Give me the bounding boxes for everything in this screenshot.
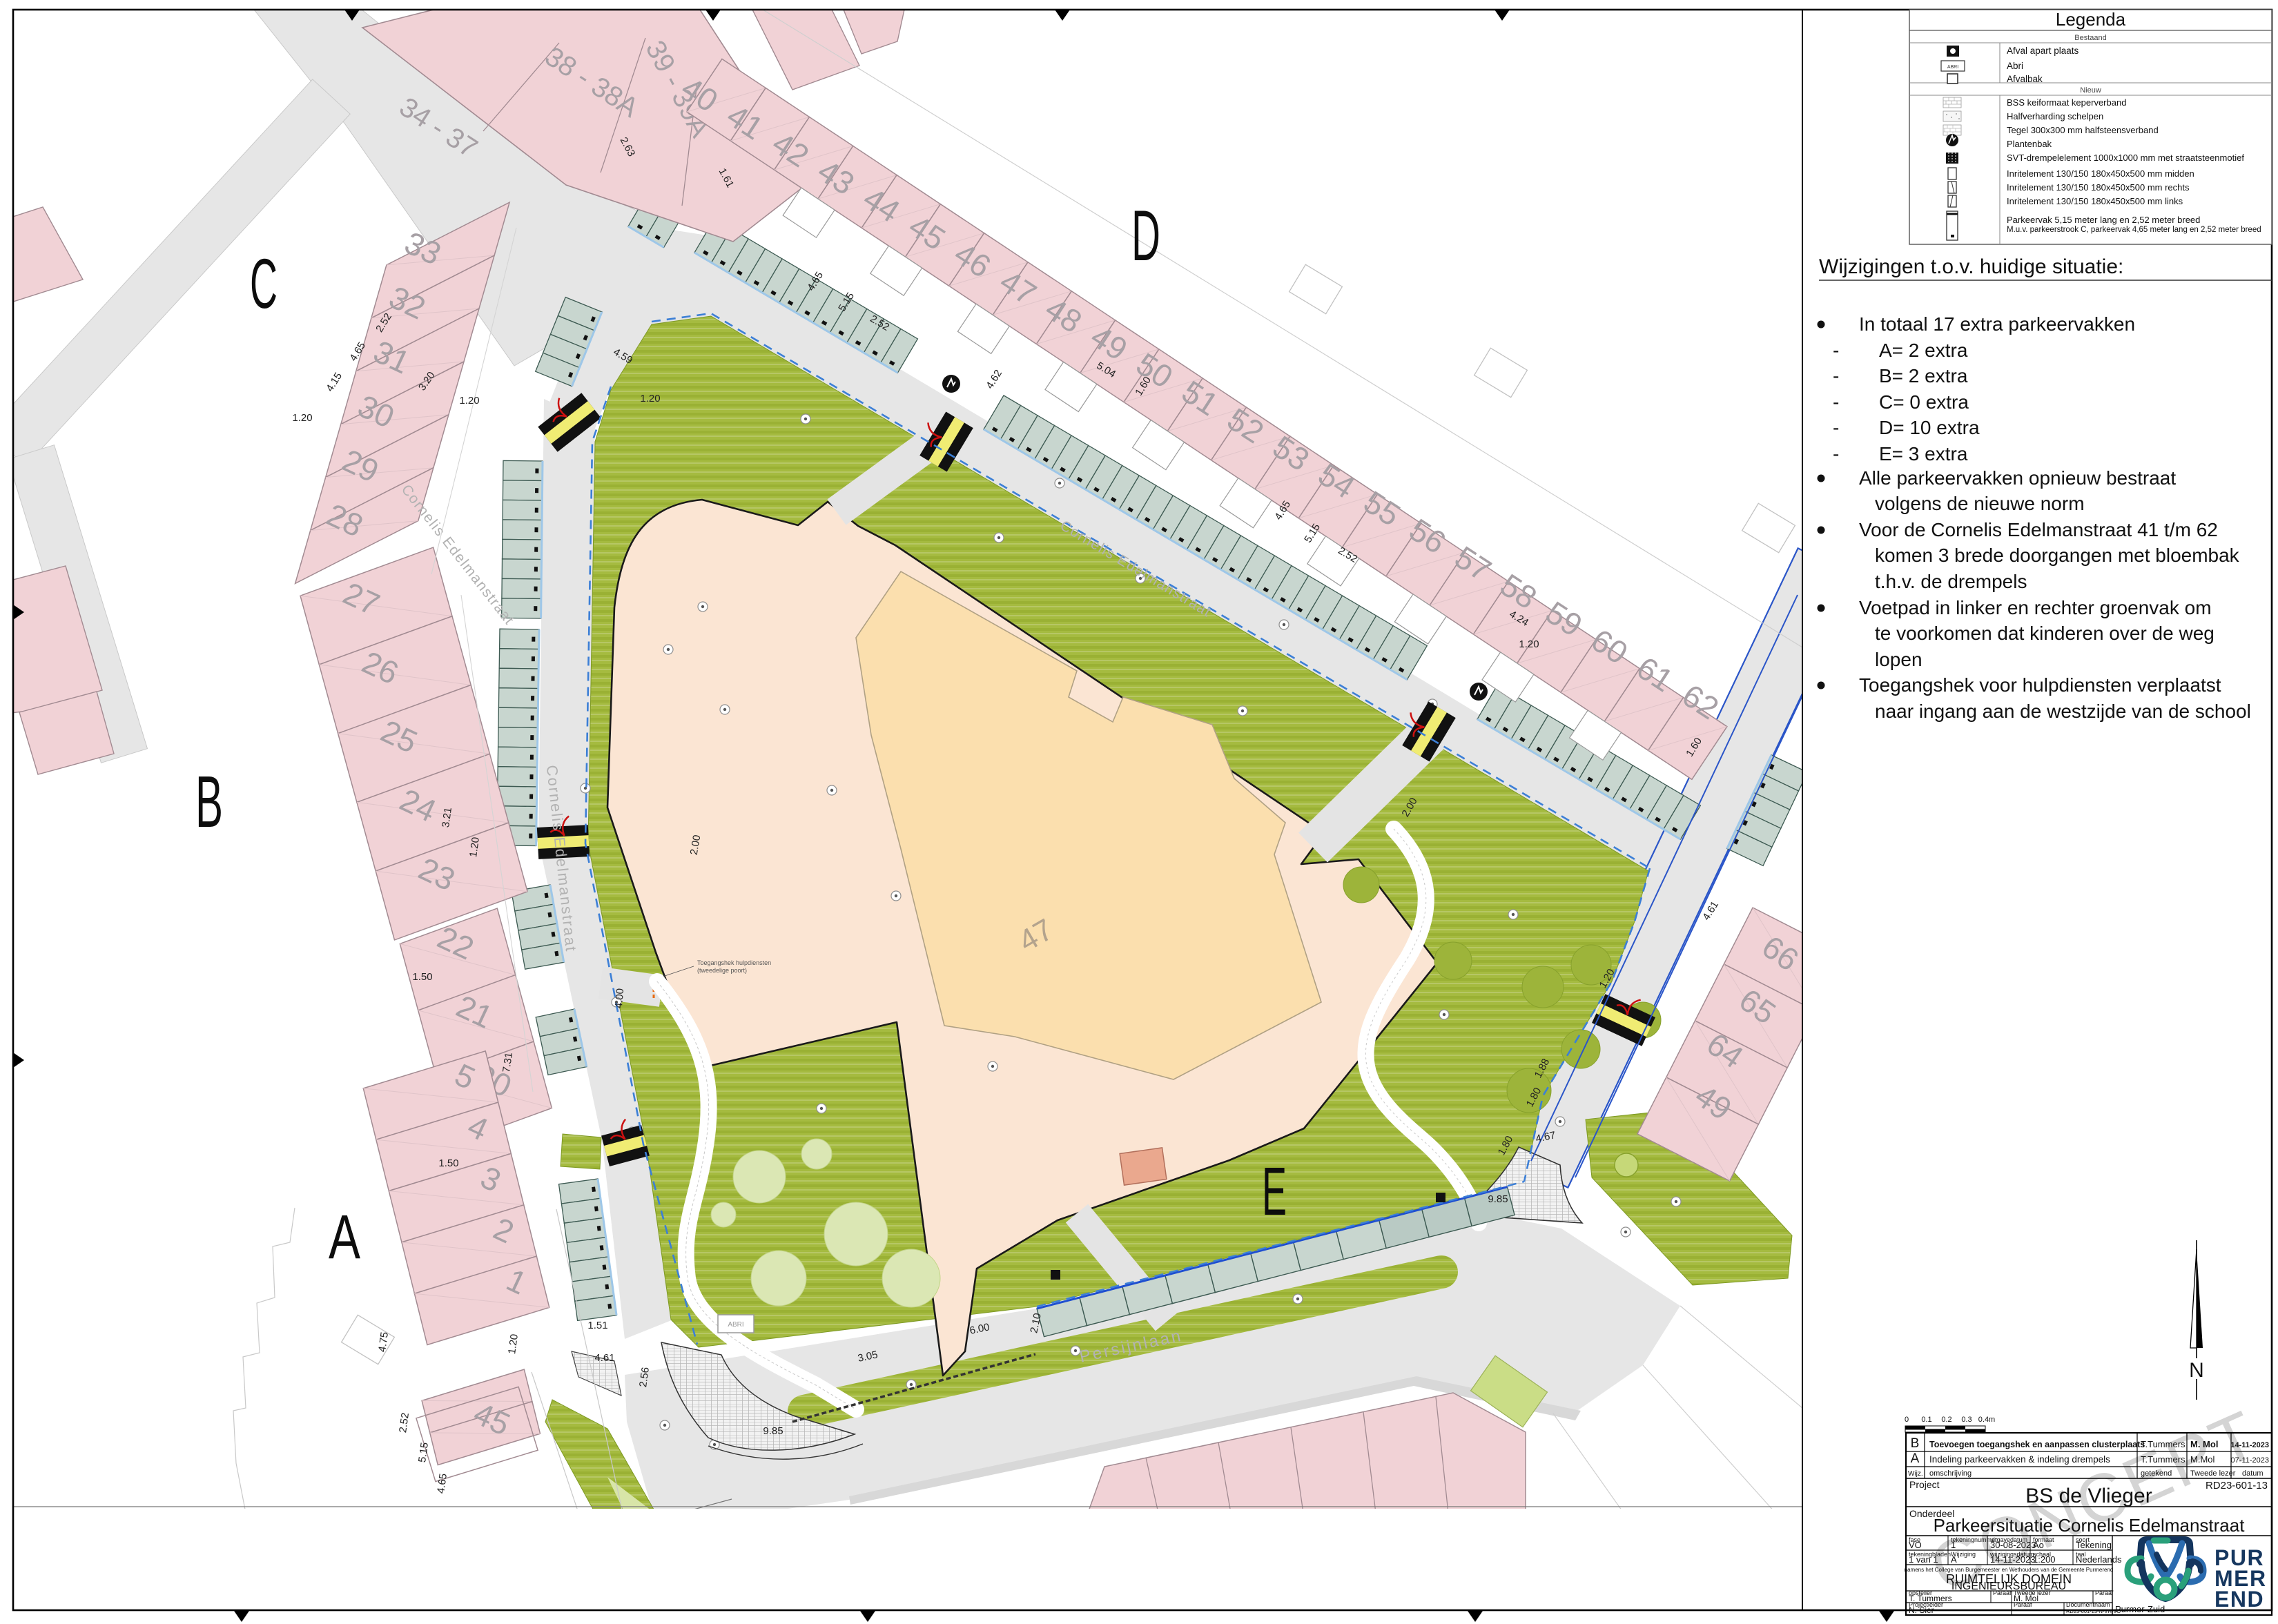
svg-text:1.20: 1.20 xyxy=(459,395,479,407)
svg-text:B: B xyxy=(1911,1436,1920,1451)
svg-text:Afvalbak: Afvalbak xyxy=(2007,74,2043,84)
svg-text:Parkeervak 5,15 meter lang en: Parkeervak 5,15 meter lang en 2,52 meter… xyxy=(2007,215,2200,225)
svg-text:VO: VO xyxy=(1909,1540,1922,1550)
svg-text:T.Tummers: T.Tummers xyxy=(2141,1439,2185,1449)
svg-text:Wijz.: Wijz. xyxy=(1908,1470,1923,1478)
svg-text:ABRI: ABRI xyxy=(728,1321,743,1329)
svg-text:RD23-601-13-N-VH-VO: RD23-601-13-N-VH-VO xyxy=(2066,1608,2121,1614)
svg-text:(tweedelige poort): (tweedelige poort) xyxy=(697,967,747,974)
svg-text:Nieuw: Nieuw xyxy=(2080,86,2101,95)
svg-text:te voorkomen dat kinderen over: te voorkomen dat kinderen over de weg xyxy=(1875,623,2214,644)
svg-text:-: - xyxy=(1833,340,1839,361)
svg-text:lopen: lopen xyxy=(1875,649,1922,670)
svg-text:Toegangshek voor hulpdiensten: Toegangshek voor hulpdiensten verplaatst xyxy=(1859,674,2221,696)
svg-text:0.4m: 0.4m xyxy=(1978,1416,1995,1424)
svg-text:komen 3 brede doorgangen met b: komen 3 brede doorgangen met bloembak xyxy=(1875,545,2240,566)
svg-text:1.20: 1.20 xyxy=(1519,638,1539,650)
svg-text:SVT-drempelelement 1000x1000 m: SVT-drempelelement 1000x1000 mm met stra… xyxy=(2007,153,2244,163)
svg-text:Purmer-Zuid: Purmer-Zuid xyxy=(2115,1604,2165,1614)
svg-text:getekend: getekend xyxy=(2141,1469,2172,1478)
svg-text:9.85: 9.85 xyxy=(1488,1193,1508,1205)
svg-text:datum: datum xyxy=(2242,1469,2264,1478)
svg-text:Voetpad in linker en rechter g: Voetpad in linker en rechter groenvak om xyxy=(1859,597,2212,618)
svg-text:Toegangshek hulpdiensten: Toegangshek hulpdiensten xyxy=(697,959,771,966)
svg-text:C: C xyxy=(250,244,278,323)
svg-text:0: 0 xyxy=(1905,1416,1909,1424)
svg-text:ABRI: ABRI xyxy=(1947,65,1958,70)
svg-text:volgens de nieuwe norm: volgens de nieuwe norm xyxy=(1875,493,2085,514)
svg-text:END: END xyxy=(2214,1587,2264,1612)
svg-text:1.51: 1.51 xyxy=(587,1320,607,1331)
svg-text:Parkeersituatie Cornelis Edelm: Parkeersituatie Cornelis Edelmanstraat xyxy=(1934,1515,2246,1536)
svg-text:T.Tummers: T.Tummers xyxy=(2141,1454,2185,1465)
svg-text:C= 0 extra: C= 0 extra xyxy=(1879,391,1969,413)
svg-text:RD23-601-13: RD23-601-13 xyxy=(2206,1480,2268,1491)
svg-text:1.20: 1.20 xyxy=(292,412,312,424)
svg-text:BS de Vlieger: BS de Vlieger xyxy=(2025,1485,2152,1507)
svg-text:1 van 1: 1 van 1 xyxy=(1909,1554,1938,1565)
svg-text:0.2: 0.2 xyxy=(1941,1416,1951,1424)
svg-text:Afval apart plaats: Afval apart plaats xyxy=(2007,46,2079,56)
svg-text:M.u.v. parkeerstrook C, parkee: M.u.v. parkeerstrook C, parkeervak 4,65 … xyxy=(2007,226,2261,234)
svg-text:A= 2 extra: A= 2 extra xyxy=(1879,340,1968,361)
svg-text:-: - xyxy=(1833,443,1839,464)
svg-text:4.61: 4.61 xyxy=(594,1352,614,1364)
svg-text:t.h.v. de drempels: t.h.v. de drempels xyxy=(1875,571,2027,592)
svg-text:0.1: 0.1 xyxy=(1921,1416,1931,1424)
svg-text:Voor de Cornelis Edelmanstraat: Voor de Cornelis Edelmanstraat 41 t/m 62 xyxy=(1859,519,2218,540)
svg-text:07-11-2023: 07-11-2023 xyxy=(2231,1456,2269,1465)
svg-text:9.85: 9.85 xyxy=(763,1425,783,1437)
svg-text:1:200: 1:200 xyxy=(2033,1554,2056,1565)
svg-text:-: - xyxy=(1833,391,1839,413)
svg-text:Halfverharding schelpen: Halfverharding schelpen xyxy=(2007,111,2103,121)
svg-text:N. Sier: N. Sier xyxy=(1909,1605,1934,1615)
svg-text:1.50: 1.50 xyxy=(438,1157,458,1169)
svg-text:Alle parkeervakken opnieuw bes: Alle parkeervakken opnieuw bestraat xyxy=(1859,467,2176,489)
svg-text:E: E xyxy=(1262,1153,1287,1229)
svg-text:A: A xyxy=(329,1203,360,1272)
svg-text:Documentnaam: Documentnaam xyxy=(2066,1601,2110,1608)
svg-text:E= 3 extra: E= 3 extra xyxy=(1879,443,1968,464)
svg-text:-: - xyxy=(1833,417,1839,438)
svg-text:Paraaf: Paraaf xyxy=(2095,1589,2114,1596)
svg-text:B= 2 extra: B= 2 extra xyxy=(1879,365,1968,387)
svg-text:14-11-2023: 14-11-2023 xyxy=(1990,1554,2036,1565)
svg-text:0.3: 0.3 xyxy=(1961,1416,1972,1424)
svg-text:Inritelement 130/150 180x450x5: Inritelement 130/150 180x450x500 mm midd… xyxy=(2007,168,2194,179)
svg-text:1.20: 1.20 xyxy=(640,393,660,404)
svg-text:Tweede lezer: Tweede lezer xyxy=(2190,1469,2236,1478)
svg-text:B: B xyxy=(195,761,223,843)
svg-text:omschrijving: omschrijving xyxy=(1929,1469,1972,1478)
svg-text:Tekening: Tekening xyxy=(2076,1540,2112,1550)
svg-text:Tegel 300x300 mm halfsteensver: Tegel 300x300 mm halfsteensverband xyxy=(2007,125,2159,135)
svg-text:N: N xyxy=(2189,1359,2204,1382)
svg-text:1.50: 1.50 xyxy=(412,971,432,983)
svg-text:BSS keiformaat keperverband: BSS keiformaat keperverband xyxy=(2007,97,2126,108)
svg-text:Inritelement 130/150 180x450x5: Inritelement 130/150 180x450x500 mm rech… xyxy=(2007,182,2190,193)
svg-text:Ao: Ao xyxy=(2033,1540,2044,1550)
svg-text:In totaal 17 extra parkeervakk: In totaal 17 extra parkeervakken xyxy=(1859,313,2135,335)
svg-text:naar ingang aan de westzijde v: naar ingang aan de westzijde van de scho… xyxy=(1875,701,2251,722)
svg-text:30-08-2023: 30-08-2023 xyxy=(1990,1540,2036,1550)
svg-text:Nederlands: Nederlands xyxy=(2076,1554,2122,1565)
svg-text:Toevoegen toegangshek en aanpa: Toevoegen toegangshek en aanpassen clust… xyxy=(1929,1440,2145,1449)
svg-text:Plantenbak: Plantenbak xyxy=(2007,139,2052,149)
svg-text:A: A xyxy=(1951,1554,1957,1565)
svg-text:14-11-2023: 14-11-2023 xyxy=(2230,1441,2269,1449)
svg-text:-: - xyxy=(1833,365,1839,387)
svg-text:Inritelement 130/150 180x450x5: Inritelement 130/150 180x450x500 mm link… xyxy=(2007,196,2183,206)
svg-text:M. Mol: M. Mol xyxy=(2190,1439,2218,1449)
svg-text:A: A xyxy=(1911,1451,1920,1466)
svg-text:D= 10 extra: D= 10 extra xyxy=(1879,417,1980,438)
svg-text:Project: Project xyxy=(1909,1479,1940,1490)
svg-text:Legenda: Legenda xyxy=(2056,9,2126,30)
svg-text:Abri: Abri xyxy=(2007,61,2023,71)
svg-text:1: 1 xyxy=(1951,1540,1956,1550)
svg-text:M.Mol: M.Mol xyxy=(2190,1454,2215,1465)
svg-text:Bestaand: Bestaand xyxy=(2074,34,2106,42)
svg-text:Indeling parkeervakken & indel: Indeling parkeervakken & indeling drempe… xyxy=(1929,1454,2110,1465)
svg-text:D: D xyxy=(1131,196,1160,276)
svg-text:Wijzigingen t.o.v. huidige sit: Wijzigingen t.o.v. huidige situatie: xyxy=(1819,255,2123,278)
svg-text:Paraaf: Paraaf xyxy=(1993,1589,2012,1596)
svg-text:4.00: 4.00 xyxy=(613,988,626,1009)
svg-text:Paraaf: Paraaf xyxy=(2014,1601,2032,1608)
